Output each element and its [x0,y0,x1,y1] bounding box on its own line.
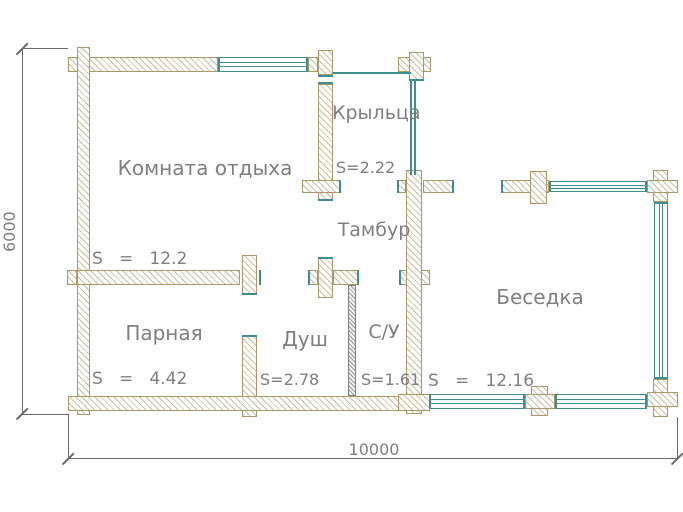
wall-post [647,392,678,407]
wall-post [647,180,678,193]
window [549,181,647,192]
vertical-dimension-label: 6000 [0,206,18,258]
door-opening [259,270,310,285]
window [654,202,668,379]
wall-post [530,171,547,204]
wall-post [409,52,424,80]
door-opening [242,293,257,337]
wall-post [67,270,77,285]
window [429,394,525,409]
door-opening [339,180,399,193]
wall-segment [318,50,333,75]
wall-segment [68,396,406,411]
extension-line [22,48,68,49]
area-label-gazebo: S = 12.16 [428,371,534,391]
porch-railing [414,81,416,175]
wall-segment [333,270,358,285]
area-label-shower: S=2.78 [260,370,319,389]
wall-segment [77,47,90,415]
wall-segment [423,180,453,193]
window [218,57,308,72]
wall-post [525,394,555,409]
extension-line [22,414,68,415]
room-label-porch: Крыльца [332,103,412,124]
dimension-line-vertical [22,48,23,414]
room-label-wc: С/У [359,322,409,343]
wall-segment [302,180,340,193]
wall-segment [318,258,333,298]
room-label-vestibule: Тамбур [335,220,413,241]
extension-line [68,414,69,458]
wall-segment [242,255,257,294]
door-opening [318,199,333,259]
room-label-gazebo: Беседка [465,286,615,308]
wall-segment [68,57,218,72]
wall-segment [308,57,318,72]
window [555,394,647,409]
area-label-wc: S=1.61 [361,370,420,389]
window [318,75,333,84]
porch-railing [410,81,412,175]
room-label-steam-room: Парная [89,322,239,344]
horizontal-dimension-label: 10000 [338,440,410,459]
floor-plan: Комната отдыха S = 12.2 Крыльца S=2.22 Т… [0,0,683,512]
extension-line [677,417,678,458]
porch-railing [333,72,411,74]
door-opening [357,270,401,285]
wall-segment [77,270,240,285]
area-label-steam-room: S = 4.42 [92,369,187,389]
room-label-rest-room: Комната отдыха [105,157,305,179]
room-label-shower: Душ [260,328,350,350]
wall-post [398,180,406,193]
door-opening [452,180,503,193]
area-label-rest-room: S = 12.2 [92,249,187,269]
area-label-porch: S=2.22 [336,158,395,177]
wall-post [398,394,430,411]
